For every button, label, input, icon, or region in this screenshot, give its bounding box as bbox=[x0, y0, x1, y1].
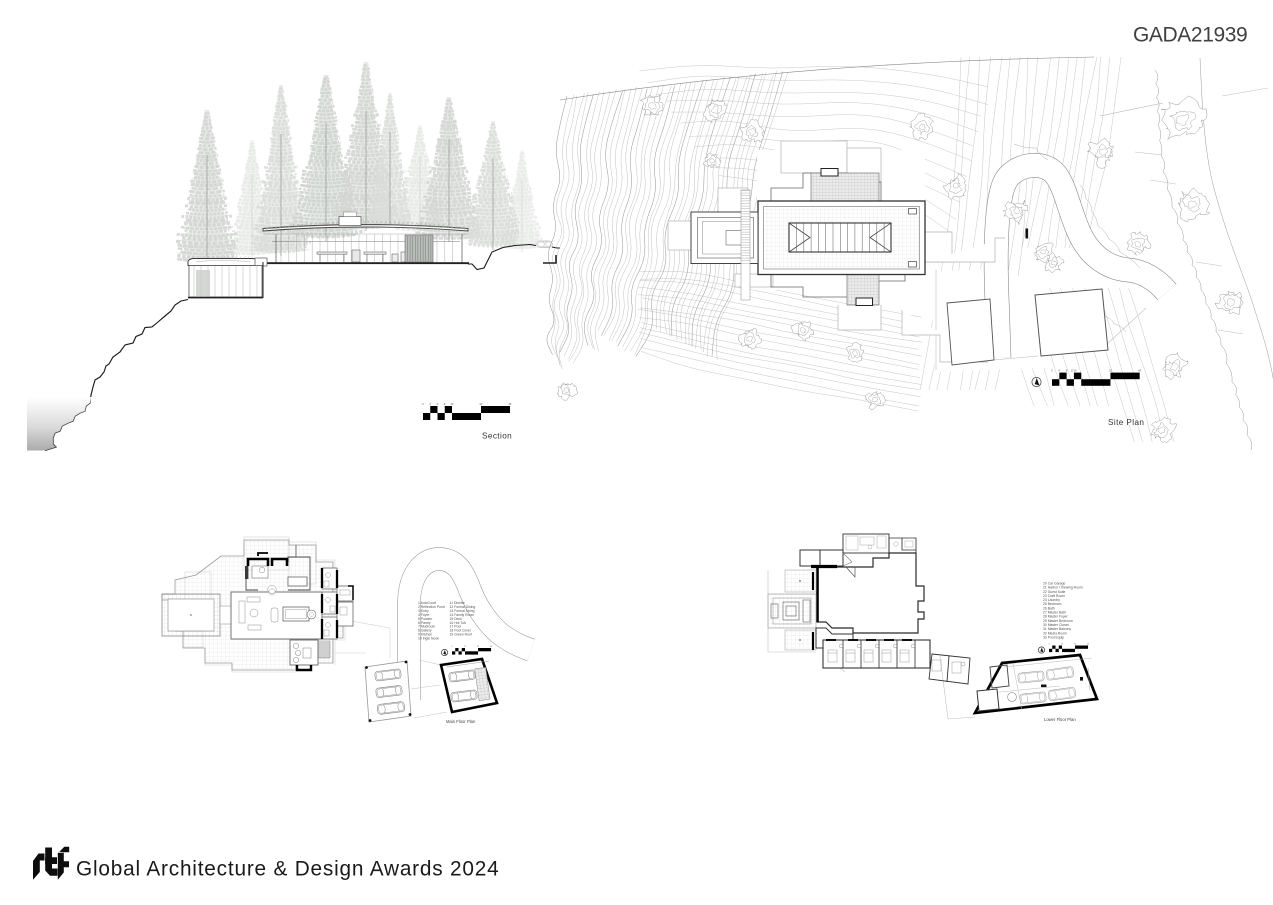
svg-text:19 Green Roof: 19 Green Roof bbox=[450, 633, 472, 637]
svg-text:Global Architecture & Design A: Global Architecture & Design Awards 2024 bbox=[76, 858, 500, 881]
svg-text:Lower Floor Plan: Lower Floor Plan bbox=[1044, 717, 1076, 722]
svg-text:Site Plan: Site Plan bbox=[1108, 418, 1144, 427]
svg-text:10 Ingle Nook: 10 Ingle Nook bbox=[418, 637, 439, 641]
svg-text:GADA21939: GADA21939 bbox=[1133, 24, 1247, 47]
svg-text:Section: Section bbox=[482, 432, 512, 441]
svg-text:12'16': 12'16' bbox=[1071, 369, 1078, 372]
svg-text:Main Floor Plan: Main Floor Plan bbox=[446, 719, 476, 724]
svg-text:33 Pool Equip: 33 Pool Equip bbox=[1043, 636, 1064, 640]
svg-text:32': 32' bbox=[1109, 369, 1113, 372]
svg-text:48': 48' bbox=[1138, 369, 1142, 372]
svg-text:12': 12' bbox=[450, 403, 454, 406]
svg-text:24': 24' bbox=[479, 403, 483, 406]
svg-text:36': 36' bbox=[508, 403, 512, 406]
